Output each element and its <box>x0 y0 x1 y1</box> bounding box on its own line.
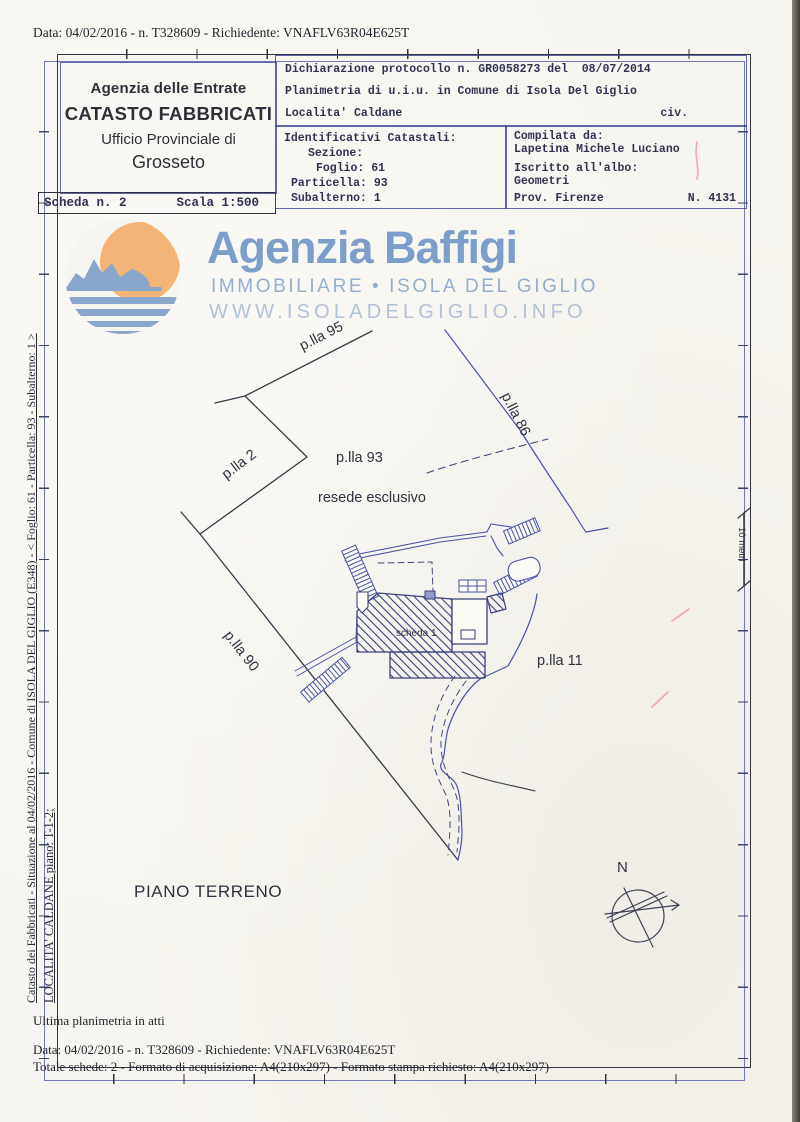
brand-tagline: IMMOBILIARE • ISOLA DEL GIGLIO <box>211 276 598 298</box>
floor-label: PIANO TERRENO <box>134 882 282 902</box>
particella-field: Particella: 93 <box>291 177 388 190</box>
north-label: N <box>617 859 628 876</box>
albo-value: Geometri <box>514 175 569 188</box>
parcel-93-label: p.lla 93 <box>336 450 383 466</box>
sidebar-metadata-line: Catasto dei Fabbricati - Situazione al 0… <box>24 333 39 1003</box>
office-city: Grosseto <box>61 152 276 173</box>
brand-title: Agenzia Baffigi <box>207 222 517 274</box>
map-scale: Scala 1:500 <box>176 196 259 210</box>
compiler-label: Compilata da: <box>514 130 604 143</box>
footer-note: Ultima planimetria in atti <box>33 1013 165 1029</box>
identifiers-box: Identificativi Catastali: Sezione: Fogli… <box>275 125 507 209</box>
foglio-field: Foglio: 61 <box>316 162 385 175</box>
sidebar-locality-line: LOCALITA' CALDANE piano: T-1-2; <box>42 808 57 1003</box>
office-line: Ufficio Provinciale di <box>61 131 276 148</box>
ruler-ticks-right <box>738 61 748 1079</box>
compiler-name: Lapetina Michele Luciano <box>514 143 680 156</box>
agency-name: Agenzia delle Entrate <box>61 80 276 97</box>
compiler-box: Compilata da: Lapetina Michele Luciano I… <box>505 125 747 209</box>
ruler-ticks-bottom <box>44 1074 743 1084</box>
albo-label: Iscritto all'albo: <box>514 162 638 175</box>
scan-edge-shadow <box>792 0 800 1122</box>
identifiers-title: Identificativi Catastali: <box>284 132 457 145</box>
declaration-box: Dichiarazione protocollo n. GR0058273 de… <box>275 55 747 127</box>
civ-label: civ. <box>660 107 688 120</box>
parcel-11-label: p.lla 11 <box>537 653 583 669</box>
outer-frame <box>44 61 745 1081</box>
sheet-number: Scheda n. 2 <box>44 196 127 210</box>
footer-totals-line: Totale schede: 2 - Formato di acquisizio… <box>33 1059 549 1075</box>
localita-line: Localita' Caldane <box>285 107 402 120</box>
office-header-box: Agenzia delle Entrate CATASTO FABBRICATI… <box>60 62 277 194</box>
registration-number: N. 4131 <box>688 192 736 205</box>
footer-request-line: Data: 04/02/2016 - n. T328609 - Richiede… <box>33 1042 395 1058</box>
scheda-1-label: scheda 1 <box>396 628 437 639</box>
subalterno-field: Subalterno: 1 <box>291 192 381 205</box>
sheet-scale-box: Scheda n. 2 Scala 1:500 <box>38 192 276 214</box>
request-header-line: Data: 04/02/2016 - n. T328609 - Richiede… <box>33 25 409 41</box>
registry-name: CATASTO FABBRICATI <box>61 103 276 125</box>
brand-website: WWW.ISOLADELGIGLIO.INFO <box>209 301 587 324</box>
protocol-line: Dichiarazione protocollo n. GR0058273 de… <box>285 63 651 76</box>
province-field: Prov. Firenze <box>514 192 604 205</box>
scale-bar-label: 10 metri <box>736 527 747 561</box>
scanned-cadastral-document: Data: 04/02/2016 - n. T328609 - Richiede… <box>0 0 800 1122</box>
sezione-field: Sezione: <box>308 147 363 160</box>
planimetria-line: Planimetria di u.i.u. in Comune di Isola… <box>285 85 637 98</box>
resede-label: resede esclusivo <box>318 490 426 506</box>
